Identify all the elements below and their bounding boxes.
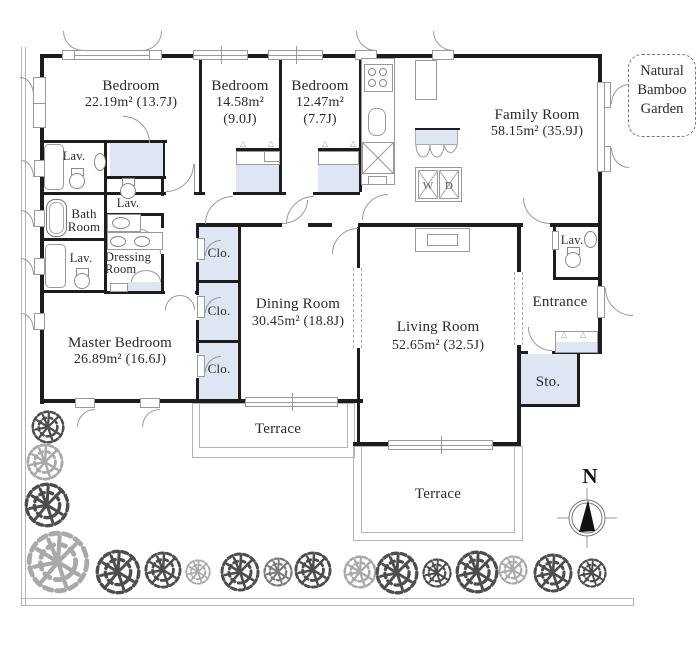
casement-arc [433, 31, 453, 51]
garden-trees [0, 390, 700, 650]
wall [550, 223, 602, 227]
room-area-living: 52.65m² (32.5J) [392, 338, 484, 354]
closet-shelf [264, 151, 280, 162]
room-label-lav: Lav. [561, 233, 584, 248]
door-arc [146, 270, 161, 282]
counter-chairs-icon [415, 144, 458, 159]
room-area-bedroom3: 12.47m² [296, 95, 344, 111]
door-arc [528, 327, 552, 351]
door-arc [123, 116, 150, 143]
door-leaf [604, 82, 611, 108]
vanity-unit [44, 144, 64, 190]
door-arc [332, 228, 358, 254]
bedroom1-closet [110, 143, 164, 176]
door-arc [166, 164, 194, 192]
window [268, 50, 323, 60]
floor-plan: W D △ △ △ △ △ △ Bedroom 22.19m² (13.7J) … [0, 0, 700, 650]
tree-icon [28, 445, 62, 479]
garden-note: Natural Bamboo Garden [628, 54, 696, 137]
tree-icon [222, 554, 258, 590]
room-label-closet: Clo. [208, 245, 231, 261]
tree-icon [457, 552, 497, 592]
toilet [69, 168, 84, 187]
bedroom2-closet [236, 165, 280, 192]
casement-arc [20, 77, 34, 95]
tree-icon [345, 557, 376, 588]
sink [110, 236, 126, 247]
breakfast-counter [415, 130, 458, 145]
wall [194, 192, 205, 195]
wall [196, 320, 199, 353]
wall [161, 216, 164, 228]
garden-note-line1: Natural [629, 62, 695, 81]
room-area-master: 26.89m² (16.6J) [74, 352, 166, 368]
tree-icon [424, 560, 451, 587]
tree-icon [29, 533, 87, 591]
wall [40, 238, 107, 241]
wall [196, 262, 199, 295]
dryer-label: D [445, 180, 453, 192]
tv [427, 234, 458, 246]
room-label-bedroom2: Bedroom [211, 78, 268, 95]
door-arc [205, 196, 233, 224]
kitchen-cabinet [368, 176, 387, 185]
window [34, 313, 45, 330]
front-door-leaf [597, 286, 605, 318]
room-label-master: Master Bedroom [68, 335, 172, 352]
room-label-bedroom3: Bedroom [291, 78, 348, 95]
tree-icon [265, 559, 292, 586]
bathtub [46, 199, 67, 237]
room-label-lav: Lav. [70, 251, 93, 266]
window [62, 50, 162, 60]
wall [199, 280, 238, 283]
shoe-cabinet-fill [556, 342, 597, 352]
hanger-mark-icon: △ [268, 139, 274, 148]
open-passage [514, 272, 523, 345]
room-area-family: 58.15m² (35.9J) [491, 124, 583, 140]
room-label-entrance: Entrance [533, 294, 588, 311]
hanger-mark-icon: △ [561, 330, 567, 339]
room-label-lav: Lav. [63, 149, 86, 164]
casement-arc [21, 210, 34, 227]
wall [199, 54, 202, 194]
open-passage [353, 268, 362, 348]
bedroom3-closet [318, 165, 359, 192]
window [193, 50, 248, 60]
wall [233, 192, 286, 195]
wall [313, 192, 360, 195]
door-arc [611, 148, 629, 168]
wall [40, 290, 107, 293]
door-arc [282, 200, 308, 224]
refrigerator-x-icon [362, 142, 394, 174]
sink [584, 231, 597, 248]
tree-icon [579, 560, 606, 587]
room-label-bath-line2: Room [68, 219, 101, 235]
burner [379, 68, 387, 76]
room-label-living: Living Room [397, 319, 480, 336]
casement-arc [21, 258, 34, 275]
closet-door [197, 238, 205, 260]
casement-arc [21, 160, 34, 177]
sink [112, 217, 130, 229]
room-tatami-bedroom2: (9.0J) [223, 112, 256, 128]
wall [238, 226, 241, 402]
toilet [565, 247, 580, 266]
casement-arc [142, 31, 162, 51]
wall [163, 143, 165, 176]
room-label-dining: Dining Room [256, 296, 340, 313]
wall [553, 277, 602, 280]
closet-shelf [318, 151, 359, 165]
room-label-dressing-line2: Room [105, 262, 136, 277]
casement-arc [63, 31, 83, 51]
wall [199, 340, 238, 343]
casement-arc [21, 313, 34, 330]
tree-icon [26, 484, 67, 525]
tree-icon [500, 557, 527, 584]
room-label-closet: Clo. [208, 361, 231, 377]
burner [368, 79, 376, 87]
wall [363, 223, 523, 227]
room-area-dining: 30.45m² (18.8J) [252, 314, 344, 330]
closet-door [197, 355, 205, 377]
wall [40, 192, 166, 195]
burner [368, 68, 376, 76]
sink [94, 153, 106, 171]
hanger-mark-icon: △ [350, 139, 356, 148]
wall [521, 351, 528, 354]
kitchen-sink [368, 108, 386, 136]
room-tatami-bedroom3: (7.7J) [303, 112, 336, 128]
hanger-mark-icon: △ [322, 139, 328, 148]
door-arc [523, 198, 550, 224]
wall [279, 54, 282, 194]
shower-unit [45, 244, 66, 288]
room-label-bedroom1: Bedroom [102, 78, 159, 95]
tree-icon [186, 560, 209, 583]
window-jamb [149, 50, 162, 60]
wall [196, 226, 199, 238]
casement-arc [356, 31, 376, 51]
wall [161, 254, 164, 293]
room-area-bedroom1: 22.19m² (13.7J) [85, 95, 177, 111]
door-arc [165, 295, 180, 310]
room-label-lav: Lav. [117, 196, 140, 211]
window [34, 210, 45, 227]
tree-icon [97, 551, 138, 592]
washer-label: W [423, 180, 434, 192]
island-counter [415, 60, 437, 100]
door-leaf [604, 146, 611, 172]
wall [517, 227, 521, 272]
room-label-storage: Sto. [536, 374, 561, 391]
door-arc [180, 295, 195, 310]
window-jamb [62, 50, 75, 60]
window [432, 50, 454, 60]
sink [134, 236, 150, 247]
tree-icon [535, 555, 571, 591]
door-arc [611, 84, 629, 104]
tree-icon [377, 553, 417, 593]
door-leaf [194, 164, 195, 192]
front-door-arc [605, 288, 633, 316]
tree-icon [146, 553, 180, 587]
door-arc [362, 194, 388, 220]
room-label-closet: Clo. [208, 303, 231, 319]
window [34, 258, 45, 275]
hanger-mark-icon: △ [240, 139, 246, 148]
wall [104, 176, 166, 179]
lav-door [552, 231, 559, 250]
closet-door [197, 296, 205, 318]
toilet [74, 268, 89, 287]
room-area-bedroom2: 14.58m² [216, 95, 264, 111]
room-label-family: Family Room [494, 107, 579, 124]
tree-icon [296, 553, 330, 587]
burner [379, 79, 387, 87]
toilet [120, 178, 135, 197]
garden-note-line3: Garden [629, 100, 695, 119]
hanger-mark-icon: △ [580, 330, 586, 339]
window [33, 77, 46, 128]
garden-note-line2: Bamboo [629, 81, 695, 100]
linen-door [110, 283, 128, 292]
tree-icon [33, 412, 64, 443]
wall [161, 176, 164, 196]
